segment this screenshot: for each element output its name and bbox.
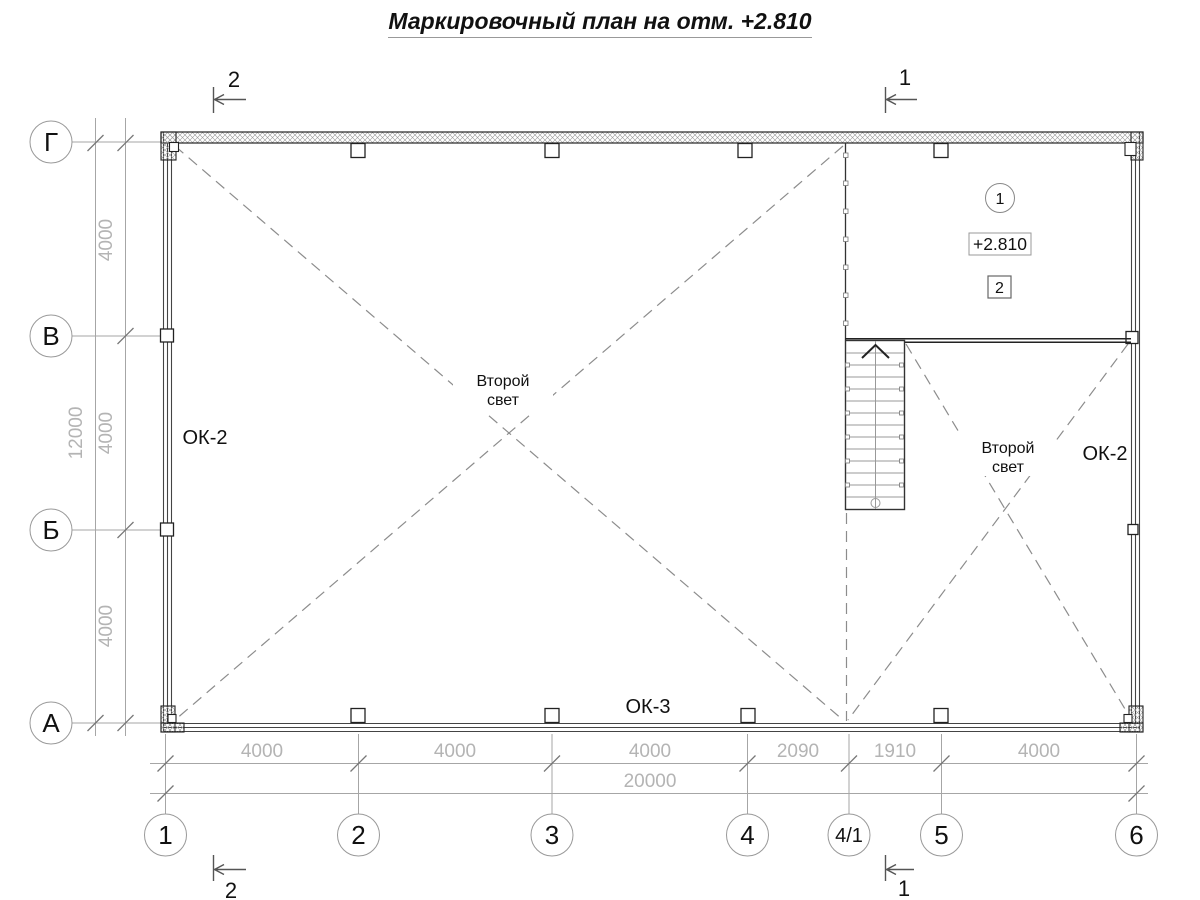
void-left-label-line1: Второй xyxy=(477,373,530,390)
dim-bottom-seg6: 4000 xyxy=(1018,741,1060,762)
axis-row-g: Г xyxy=(44,127,58,157)
axis-row-a: А xyxy=(42,708,60,738)
stair-axis-label: 1 xyxy=(996,191,1005,208)
dim-bottom-seg2: 4000 xyxy=(434,741,476,762)
void-right-label-line2: свет xyxy=(992,459,1025,476)
void-diagonals xyxy=(175,146,1128,721)
window-label-right: ОК-2 xyxy=(1083,443,1128,465)
corner-column-top-left xyxy=(161,132,179,160)
right-wall xyxy=(1132,132,1140,732)
corner-column-bottom-left xyxy=(161,706,184,732)
corner-column-bottom-right xyxy=(1120,706,1143,732)
axis-circles xyxy=(30,121,1158,856)
dim-left-seg3: 4000 xyxy=(96,605,117,647)
elevation-label: +2.810 xyxy=(973,234,1027,254)
axis-row-b: Б xyxy=(42,515,59,545)
axis-col-5: 5 xyxy=(934,820,948,850)
section-label-1-bottom: 1 xyxy=(898,876,910,900)
dim-left-seg1: 4000 xyxy=(96,219,117,261)
void-right-label-line1: Второй xyxy=(982,440,1035,457)
room-number-label: 2 xyxy=(995,280,1004,297)
axis-col-2: 2 xyxy=(351,820,365,850)
dim-bottom-seg4: 2090 xyxy=(777,741,819,762)
dim-bottom-seg5: 1910 xyxy=(874,741,916,762)
staircase xyxy=(846,341,905,510)
axis-col-6: 6 xyxy=(1129,820,1143,850)
dim-bottom-seg3: 4000 xyxy=(629,741,671,762)
top-wall xyxy=(161,132,1143,143)
floor-plan-svg: 4000 4000 4000 12000 4000 4000 4000 2090… xyxy=(0,0,1200,900)
section-label-2-top: 2 xyxy=(228,67,240,92)
section-label-2-bottom: 2 xyxy=(225,878,237,900)
axis-col-3: 3 xyxy=(545,820,559,850)
dim-bottom-seg1: 4000 xyxy=(241,741,283,762)
drawing-canvas: Маркировочный план на отм. +2.810 4000 xyxy=(0,0,1200,900)
section-label-1-top: 1 xyxy=(899,65,911,90)
axis-col-4-1: 4/1 xyxy=(835,825,863,847)
axis-row-v: В xyxy=(42,321,59,351)
side-walls xyxy=(163,132,1140,732)
dim-bottom-total: 20000 xyxy=(624,771,677,792)
void-left-label-line2: свет xyxy=(487,392,520,409)
window-label-bottom: ОК-3 xyxy=(626,696,671,718)
dim-left-seg2: 4000 xyxy=(96,412,117,454)
axis-col-4: 4 xyxy=(740,820,754,850)
dim-left-total: 12000 xyxy=(66,407,87,460)
corner-columns xyxy=(161,132,1143,732)
column-squares xyxy=(161,144,1139,723)
bottom-wall xyxy=(163,724,1140,732)
axis-col-1: 1 xyxy=(158,820,172,850)
window-label-left: ОК-2 xyxy=(183,427,228,449)
left-wall xyxy=(164,132,172,732)
section-arrow-1-top-icon xyxy=(886,87,918,113)
